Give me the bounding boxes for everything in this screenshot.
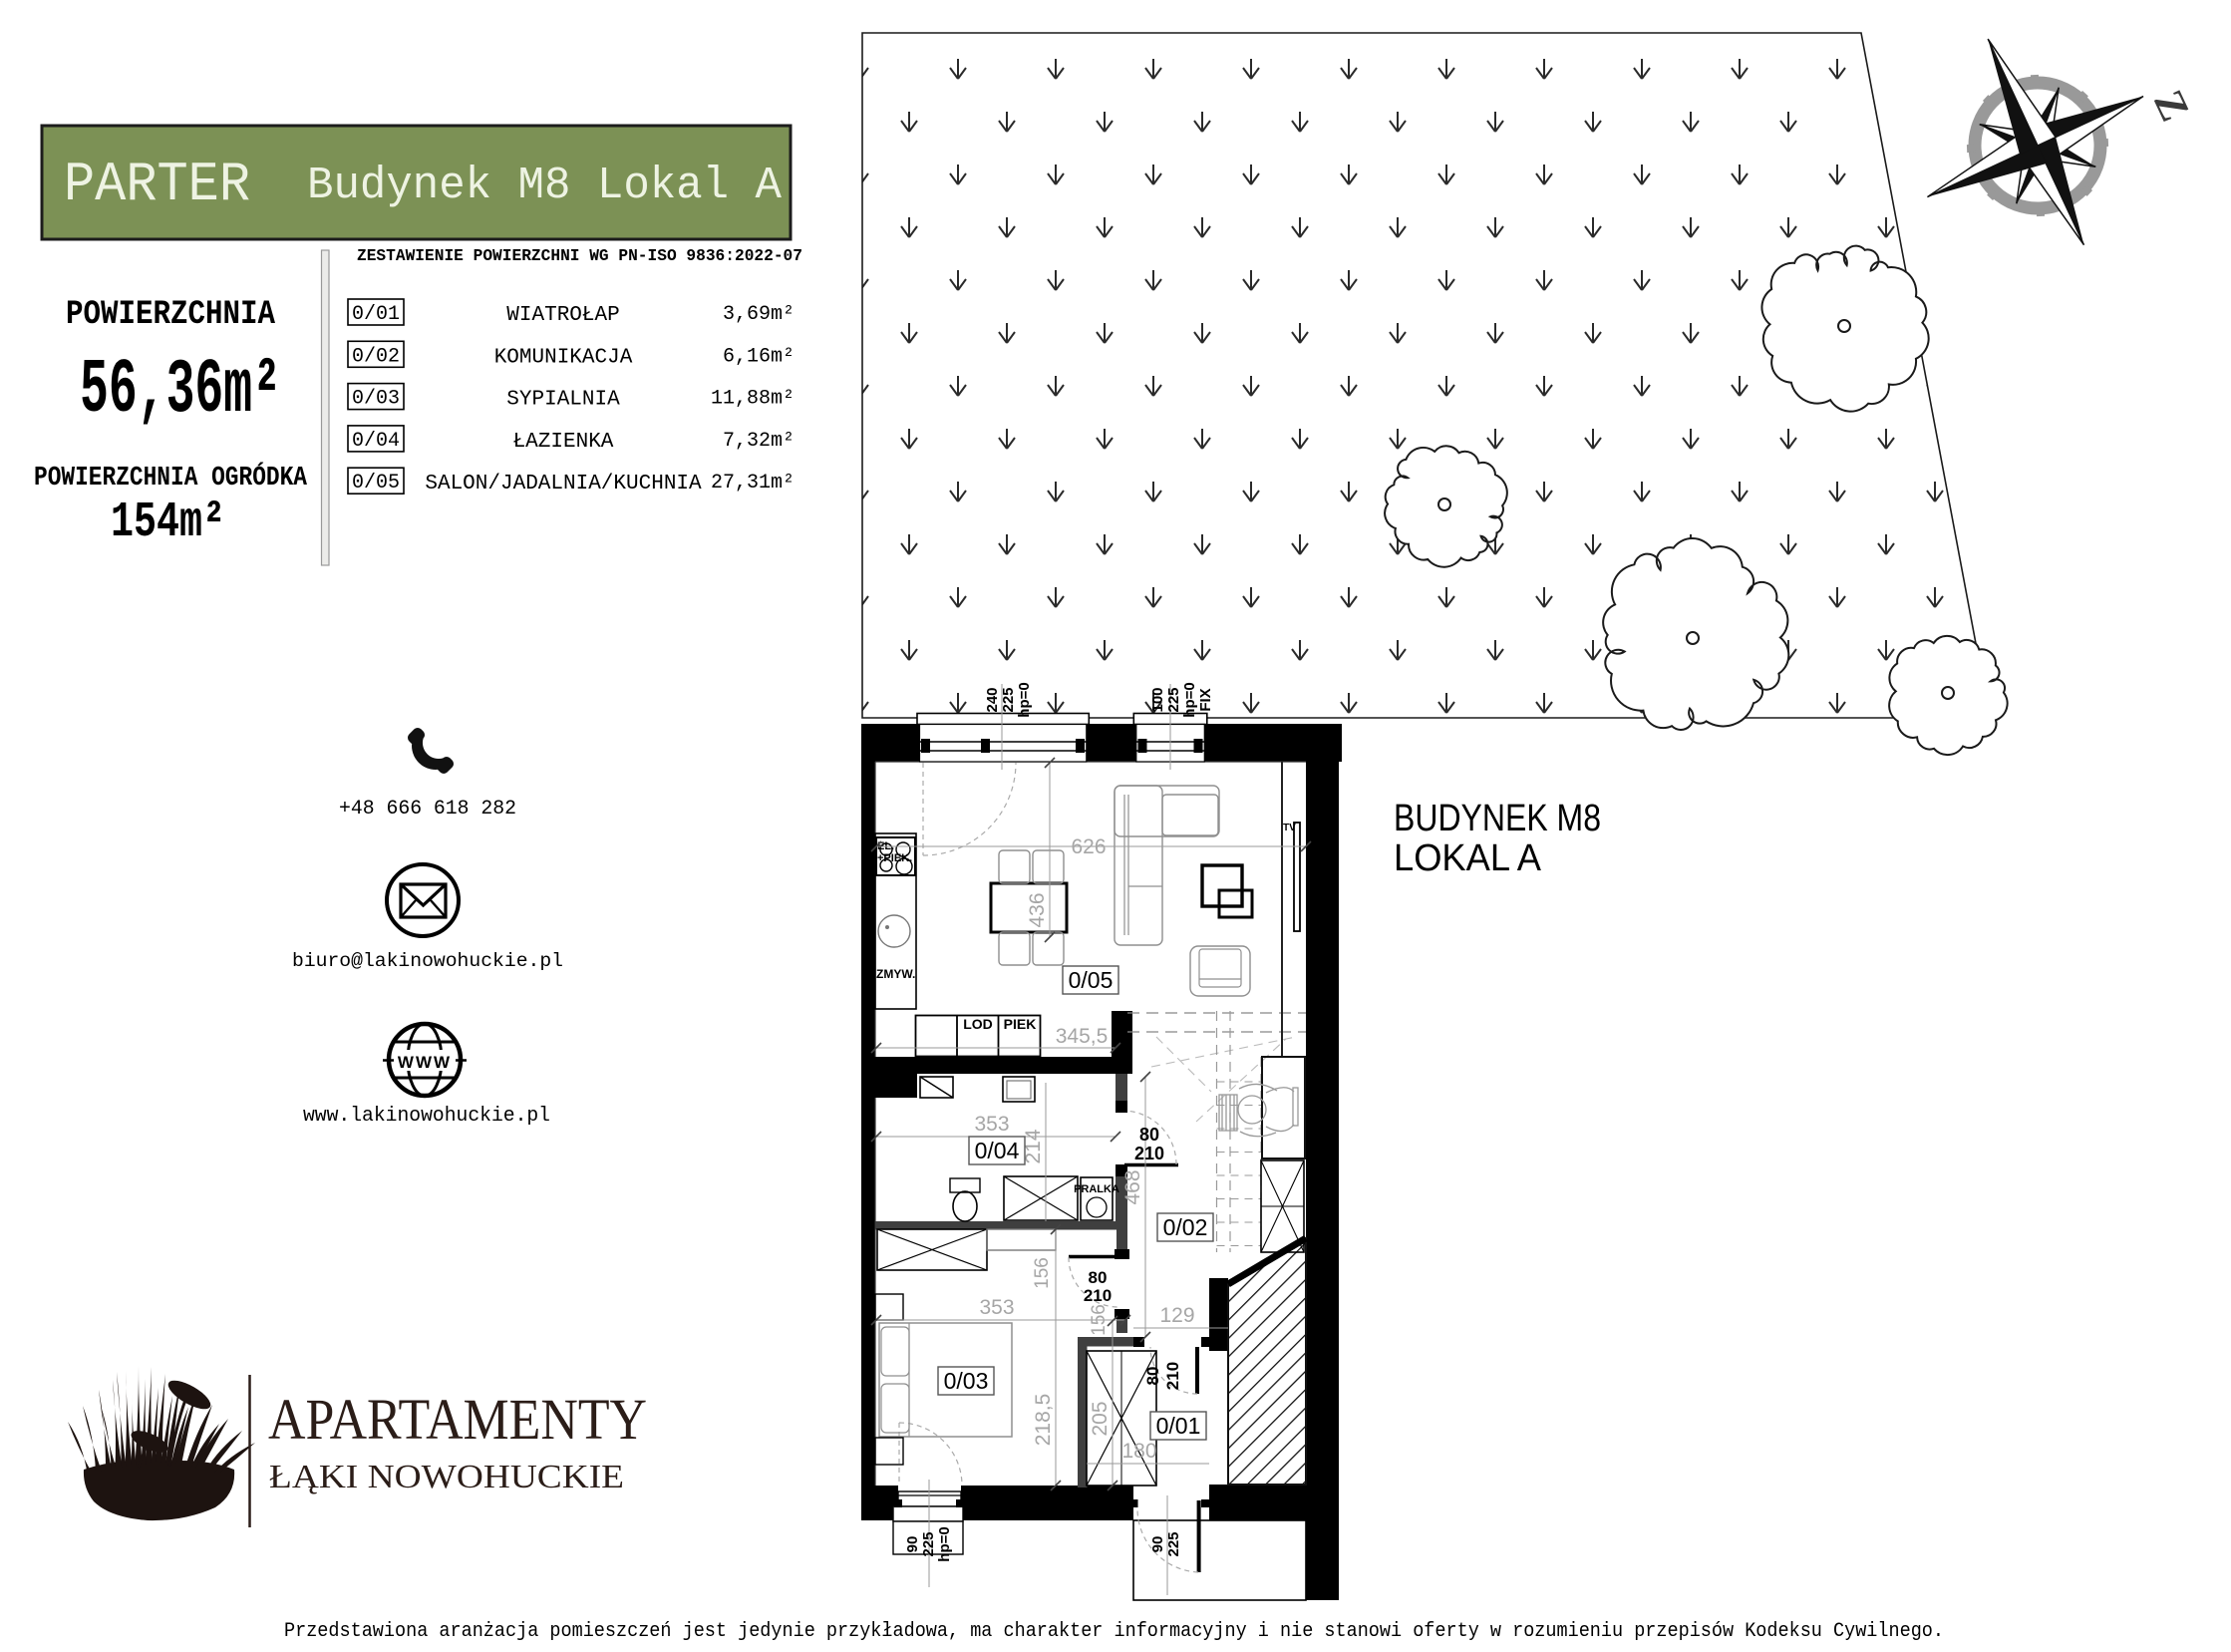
- svg-text:90: 90: [904, 1536, 921, 1553]
- svg-text:WWW: WWW: [398, 1053, 452, 1072]
- svg-text:56,36m²: 56,36m²: [80, 348, 281, 435]
- svg-text:218,5: 218,5: [1032, 1394, 1055, 1447]
- svg-text:80: 80: [1143, 1367, 1162, 1386]
- svg-text:6,16m²: 6,16m²: [723, 345, 795, 368]
- svg-text:225: 225: [1000, 687, 1017, 712]
- svg-text:225: 225: [1165, 687, 1182, 712]
- svg-text:ŁĄKI NOWOHUCKIE: ŁĄKI NOWOHUCKIE: [269, 1459, 624, 1495]
- svg-text:0/01: 0/01: [1156, 1413, 1201, 1439]
- svg-text:LOKAL A: LOKAL A: [1394, 837, 1542, 879]
- svg-text:POWIERZCHNIA: POWIERZCHNIA: [66, 296, 276, 334]
- svg-text:353: 353: [979, 1296, 1014, 1319]
- svg-text:Przedstawiona aranżacja pomies: Przedstawiona aranżacja pomieszczeń jest…: [284, 1620, 1944, 1643]
- svg-text:PIEK: PIEK: [1004, 1016, 1037, 1032]
- svg-text:436: 436: [1026, 892, 1049, 927]
- svg-text:ZESTAWIENIE POWIERZCHNI WG PN-: ZESTAWIENIE POWIERZCHNI WG PN-ISO 9836:2…: [357, 247, 802, 266]
- svg-text:KOMUNIKACJA: KOMUNIKACJA: [494, 346, 633, 369]
- svg-text:POWIERZCHNIA OGRÓDKA: POWIERZCHNIA OGRÓDKA: [34, 461, 308, 494]
- svg-text:ZMYW.: ZMYW.: [876, 967, 915, 981]
- svg-text:FIX: FIX: [1197, 688, 1214, 711]
- svg-text:SALON/JADALNIA/KUCHNIA: SALON/JADALNIA/KUCHNIA: [425, 473, 702, 496]
- svg-text:SYPIALNIA: SYPIALNIA: [506, 389, 620, 412]
- svg-text:154m²: 154m²: [111, 495, 225, 551]
- svg-text:BUDYNEK M8: BUDYNEK M8: [1394, 798, 1601, 839]
- svg-text:100: 100: [1149, 687, 1166, 712]
- svg-text:0/03: 0/03: [944, 1368, 989, 1394]
- svg-text:129: 129: [1159, 1304, 1194, 1327]
- svg-text:240: 240: [984, 687, 1001, 712]
- svg-text:PRALKA: PRALKA: [1074, 1183, 1119, 1195]
- svg-text:180: 180: [1121, 1440, 1156, 1463]
- svg-text:hp=0: hp=0: [1181, 682, 1198, 717]
- svg-text:0/01: 0/01: [352, 303, 400, 326]
- svg-text:0/03: 0/03: [352, 388, 400, 411]
- svg-text:0/05: 0/05: [1069, 967, 1114, 993]
- svg-text:TV: TV: [1283, 823, 1296, 833]
- svg-text:90: 90: [1149, 1536, 1166, 1553]
- svg-text:0/04: 0/04: [352, 430, 400, 453]
- svg-text:225: 225: [920, 1531, 937, 1556]
- svg-text:0/05: 0/05: [352, 472, 400, 495]
- svg-text:156: 156: [1089, 1304, 1110, 1336]
- svg-text:hp=0: hp=0: [936, 1526, 953, 1561]
- svg-text:11,88m²: 11,88m²: [711, 388, 795, 411]
- svg-text:468: 468: [1121, 1169, 1144, 1204]
- svg-text:7,32m²: 7,32m²: [723, 430, 795, 453]
- svg-text:210: 210: [1134, 1144, 1164, 1163]
- svg-text:80: 80: [1139, 1125, 1159, 1145]
- svg-text:0/02: 0/02: [1163, 1214, 1208, 1240]
- svg-text:626: 626: [1071, 835, 1106, 858]
- svg-text:+PIEK.: +PIEK.: [877, 852, 912, 864]
- svg-text:353: 353: [974, 1113, 1009, 1136]
- svg-text:WIATROŁAP: WIATROŁAP: [506, 304, 619, 327]
- svg-text:225: 225: [1165, 1531, 1182, 1556]
- svg-text:+48 666 618 282: +48 666 618 282: [339, 798, 516, 821]
- svg-text:biuro@lakinowohuckie.pl: biuro@lakinowohuckie.pl: [292, 950, 563, 972]
- svg-text:156: 156: [1032, 1257, 1053, 1289]
- svg-text:27,31m²: 27,31m²: [711, 472, 795, 495]
- svg-text:0/02: 0/02: [352, 345, 400, 368]
- svg-text:205: 205: [1089, 1401, 1112, 1436]
- svg-text:80: 80: [1089, 1268, 1108, 1287]
- svg-text:345,5: 345,5: [1056, 1025, 1109, 1048]
- svg-text:210: 210: [1084, 1286, 1112, 1305]
- svg-text:PARTER: PARTER: [64, 153, 250, 216]
- svg-text:APARTAMENTY: APARTAMENTY: [268, 1387, 647, 1452]
- svg-text:LOD: LOD: [963, 1016, 993, 1032]
- svg-text:www.lakinowohuckie.pl: www.lakinowohuckie.pl: [303, 1105, 550, 1128]
- svg-text:Budynek M8 Lokal A: Budynek M8 Lokal A: [307, 161, 782, 211]
- svg-text:0/04: 0/04: [975, 1138, 1020, 1163]
- svg-text:3,69m²: 3,69m²: [723, 303, 795, 326]
- svg-text:ŁAZIENKA: ŁAZIENKA: [513, 431, 614, 454]
- svg-text:hp=0: hp=0: [1016, 682, 1033, 717]
- svg-text:210: 210: [1163, 1362, 1182, 1390]
